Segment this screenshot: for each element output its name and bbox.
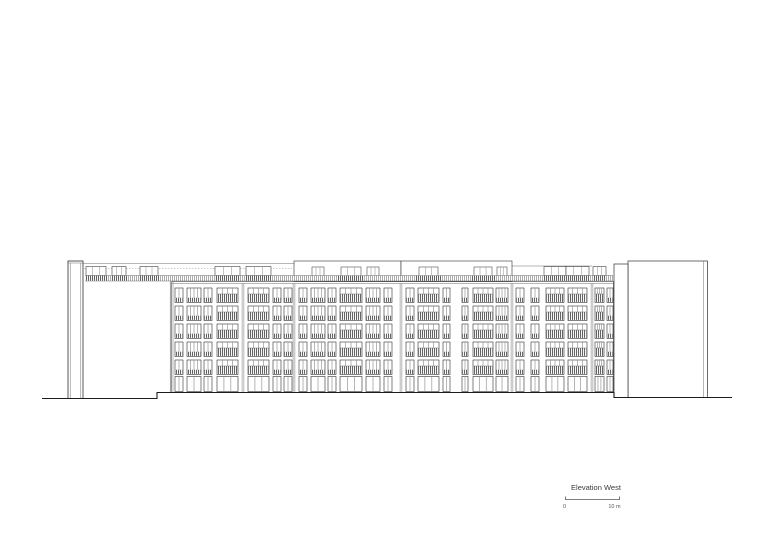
ground-floor-opening xyxy=(418,377,439,392)
balcony-railing-hatch xyxy=(419,366,439,374)
balcony-railing-hatch xyxy=(249,294,269,302)
window-railing-hatch xyxy=(329,298,336,302)
balcony-railing-hatch xyxy=(596,348,604,356)
window-railing-hatch xyxy=(300,298,307,302)
balcony-railing-hatch xyxy=(419,330,439,338)
window-railing-hatch xyxy=(329,316,336,320)
railing-dark-segment xyxy=(566,276,589,281)
railing-dark-segment xyxy=(338,276,364,281)
railing-dark-segment xyxy=(111,276,127,281)
window-railing-hatch xyxy=(367,316,380,320)
scale-zero-label: 0 xyxy=(563,504,566,510)
balcony-railing-hatch xyxy=(341,294,362,302)
balcony-railing-hatch xyxy=(547,348,564,356)
window-railing-hatch xyxy=(285,298,292,302)
window-railing-hatch xyxy=(407,370,414,374)
window-railing-hatch xyxy=(608,334,613,338)
balcony-railing-hatch xyxy=(474,348,493,356)
balcony-railing-hatch xyxy=(596,330,604,338)
window-railing-hatch xyxy=(517,298,524,302)
window-railing-hatch xyxy=(205,370,212,374)
balcony-railing-hatch xyxy=(249,312,269,320)
window-railing-hatch xyxy=(274,316,281,320)
window-railing-hatch xyxy=(608,298,613,302)
window-railing-hatch xyxy=(532,352,539,356)
balcony-railing-hatch xyxy=(596,366,604,374)
railing-dark-segment xyxy=(85,276,107,281)
ground-floor-opening xyxy=(568,377,587,392)
ground-floor-opening xyxy=(217,377,238,392)
balcony-railing-hatch xyxy=(569,330,587,338)
window-railing-hatch xyxy=(300,370,307,374)
window-railing-hatch xyxy=(497,298,508,302)
ground-floor-opening xyxy=(595,377,604,392)
window-railing-hatch xyxy=(367,298,380,302)
window-railing-hatch xyxy=(444,316,450,320)
railing-dark-segment xyxy=(544,276,566,281)
window-railing-hatch xyxy=(385,352,392,356)
window-railing-hatch xyxy=(367,352,380,356)
window-railing-hatch xyxy=(463,352,468,356)
window-railing-hatch xyxy=(608,370,613,374)
window-railing-hatch xyxy=(407,316,414,320)
window-railing-hatch xyxy=(300,316,307,320)
balcony-railing-hatch xyxy=(341,348,362,356)
railing-dark-segment xyxy=(246,276,271,281)
window-railing-hatch xyxy=(312,316,325,320)
window-railing-hatch xyxy=(285,316,292,320)
window-railing-hatch xyxy=(385,370,392,374)
stair-block xyxy=(614,264,628,398)
railing-dark-segment xyxy=(471,276,495,281)
balcony-railing-hatch xyxy=(218,294,238,302)
balcony-railing-hatch xyxy=(249,366,269,374)
window-railing-hatch xyxy=(300,334,307,338)
elevation-drawing-svg: Elevation West 0 10 m xyxy=(0,0,780,552)
balcony-railing-hatch xyxy=(218,312,238,320)
window-railing-hatch xyxy=(205,334,212,338)
window-railing-hatch xyxy=(532,334,539,338)
balcony-railing-hatch xyxy=(474,366,493,374)
window-railing-hatch xyxy=(188,352,201,356)
roof-box xyxy=(246,267,271,276)
window-railing-hatch xyxy=(532,316,539,320)
railing-dark-segment xyxy=(139,276,159,281)
window-railing-hatch xyxy=(517,316,524,320)
roof-box xyxy=(593,267,606,276)
balcony-railing-hatch xyxy=(419,348,439,356)
balcony-railing-hatch xyxy=(341,330,362,338)
balcony-railing-hatch xyxy=(547,366,564,374)
window-railing-hatch xyxy=(517,352,524,356)
window-railing-hatch xyxy=(205,298,212,302)
window-railing-hatch xyxy=(176,316,183,320)
window-railing-hatch xyxy=(532,298,539,302)
scale-max-label: 10 m xyxy=(608,504,621,510)
balcony-railing-hatch xyxy=(596,312,604,320)
drawing-sheet: Elevation West 0 10 m xyxy=(0,0,780,552)
window-railing-hatch xyxy=(188,298,201,302)
window-railing-hatch xyxy=(385,316,392,320)
balcony-railing-hatch xyxy=(569,312,587,320)
railing-dark-segment xyxy=(215,276,240,281)
drawing-title: Elevation West xyxy=(571,483,622,492)
window-railing-hatch xyxy=(312,298,325,302)
window-railing-hatch xyxy=(312,370,325,374)
balcony-railing-hatch xyxy=(547,330,564,338)
window-railing-hatch xyxy=(188,370,201,374)
balcony-railing-hatch xyxy=(474,294,493,302)
window-railing-hatch xyxy=(176,334,183,338)
window-railing-hatch xyxy=(367,334,380,338)
window-railing-hatch xyxy=(274,334,281,338)
window-railing-hatch xyxy=(497,352,508,356)
right-building-wall xyxy=(628,261,708,398)
window-railing-hatch xyxy=(517,334,524,338)
window-railing-hatch xyxy=(285,370,292,374)
window-railing-hatch xyxy=(463,316,468,320)
balcony-railing-hatch xyxy=(419,312,439,320)
balcony-railing-hatch xyxy=(218,348,238,356)
window-railing-hatch xyxy=(285,334,292,338)
window-railing-hatch xyxy=(367,370,380,374)
balcony-railing-hatch xyxy=(547,312,564,320)
window-railing-hatch xyxy=(463,334,468,338)
window-railing-hatch xyxy=(444,352,450,356)
window-railing-hatch xyxy=(608,352,613,356)
window-railing-hatch xyxy=(176,370,183,374)
balcony-railing-hatch xyxy=(341,312,362,320)
roof-box xyxy=(86,267,106,276)
window-railing-hatch xyxy=(188,334,201,338)
window-railing-hatch xyxy=(329,370,336,374)
railing-dark-segment xyxy=(416,276,441,281)
window-railing-hatch xyxy=(176,352,183,356)
window-railing-hatch xyxy=(312,334,325,338)
window-railing-hatch xyxy=(385,298,392,302)
window-railing-hatch xyxy=(329,352,336,356)
window-railing-hatch xyxy=(444,370,450,374)
window-railing-hatch xyxy=(274,298,281,302)
balcony-railing-hatch xyxy=(547,294,564,302)
window-railing-hatch xyxy=(385,334,392,338)
roof-box xyxy=(140,267,158,276)
ground-floor-opening xyxy=(473,377,493,392)
window-railing-hatch xyxy=(205,352,212,356)
window-railing-hatch xyxy=(188,316,201,320)
balcony-railing-hatch xyxy=(474,312,493,320)
roof-box xyxy=(215,267,240,276)
window-railing-hatch xyxy=(285,352,292,356)
roof-box xyxy=(544,267,566,276)
window-railing-hatch xyxy=(274,352,281,356)
window-railing-hatch xyxy=(176,298,183,302)
railing-dark-segment xyxy=(593,276,606,281)
window-railing-hatch xyxy=(517,370,524,374)
ground-floor-opening xyxy=(248,377,269,392)
ground-floor-opening xyxy=(340,377,362,392)
window-railing-hatch xyxy=(497,316,508,320)
window-railing-hatch xyxy=(300,352,307,356)
window-railing-hatch xyxy=(497,370,508,374)
window-railing-hatch xyxy=(329,334,336,338)
window-railing-hatch xyxy=(532,370,539,374)
window-railing-hatch xyxy=(608,316,613,320)
window-railing-hatch xyxy=(463,370,468,374)
window-railing-hatch xyxy=(463,298,468,302)
ground-floor-opening xyxy=(546,377,564,392)
balcony-railing-hatch xyxy=(341,366,362,374)
balcony-railing-hatch xyxy=(249,330,269,338)
roof-box xyxy=(566,267,589,276)
balcony-railing-hatch xyxy=(569,348,587,356)
window-railing-hatch xyxy=(444,298,450,302)
window-railing-hatch xyxy=(407,298,414,302)
roof-box xyxy=(112,267,126,276)
balcony-railing-hatch xyxy=(218,366,238,374)
window-railing-hatch xyxy=(312,352,325,356)
balcony-railing-hatch xyxy=(249,348,269,356)
window-railing-hatch xyxy=(274,370,281,374)
window-railing-hatch xyxy=(497,334,508,338)
balcony-railing-hatch xyxy=(419,294,439,302)
window-railing-hatch xyxy=(407,334,414,338)
window-railing-hatch xyxy=(205,316,212,320)
balcony-railing-hatch xyxy=(596,294,604,302)
balcony-railing-hatch xyxy=(474,330,493,338)
balcony-railing-hatch xyxy=(569,366,587,374)
window-railing-hatch xyxy=(444,334,450,338)
balcony-railing-hatch xyxy=(218,330,238,338)
balcony-railing-hatch xyxy=(569,294,587,302)
window-railing-hatch xyxy=(407,352,414,356)
